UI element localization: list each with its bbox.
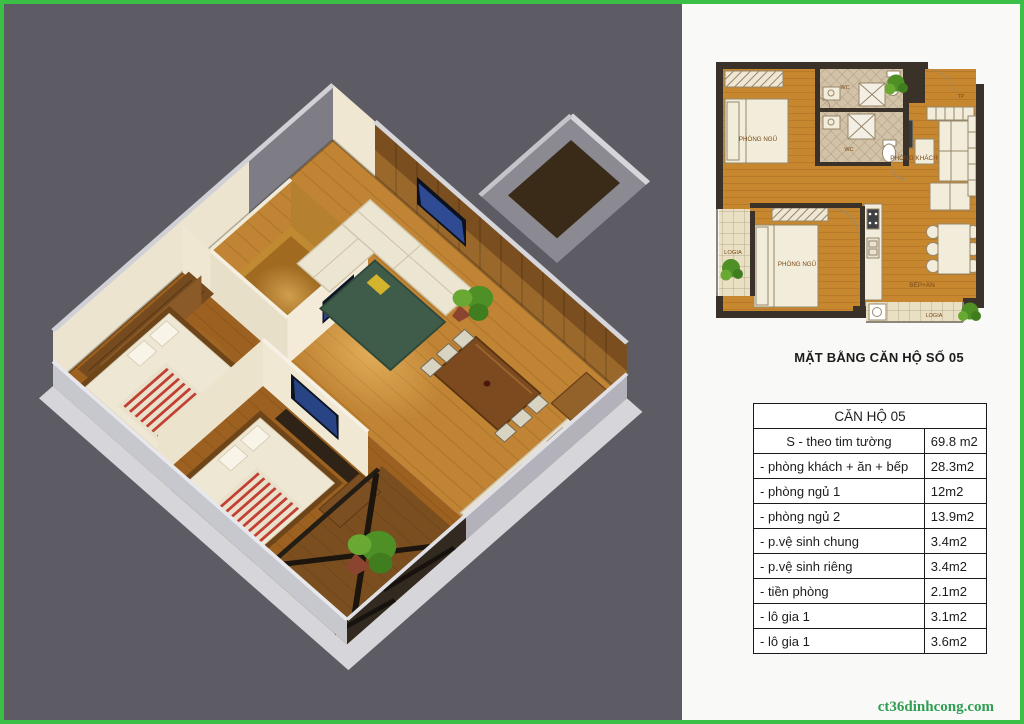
row-value: 3.6m2 (924, 629, 986, 654)
row-value: 2.1m2 (924, 579, 986, 604)
room-label-logia-bottom: LOGIA (926, 313, 943, 319)
row-label: - p.vệ sinh riêng (754, 554, 925, 579)
floor-plan: PHÒNG NGỦ WC WC PHÒNG KHÁCH TP LOGIA PHÒ… (712, 58, 990, 334)
table-row: - lô gia 13.1m2 (754, 604, 987, 629)
row-value: 3.4m2 (924, 529, 986, 554)
room-label-entry: TP (957, 94, 964, 100)
table-header-row: CĂN HỘ 05 (754, 404, 987, 429)
tv-cabinet (968, 116, 976, 196)
table-row: - p.vệ sinh chung3.4m2 (754, 529, 987, 554)
area-table-body: S - theo tim tường69.8 m2- phòng khách +… (754, 429, 987, 654)
row-value: 3.4m2 (924, 554, 986, 579)
table-row: - p.vệ sinh riêng3.4m2 (754, 554, 987, 579)
kitchen-counter (864, 204, 882, 300)
sink-icon (823, 87, 840, 100)
sofa-icon (930, 183, 970, 210)
row-value: 13.9m2 (924, 504, 986, 529)
row-label: - p.vệ sinh chung (754, 529, 925, 554)
room-label-logia-left: LOGIA (724, 250, 742, 256)
table-header: CĂN HỘ 05 (754, 404, 987, 429)
room-label-living: PHÒNG KHÁCH (890, 153, 938, 162)
page-title: MẶT BẰNG CĂN HỘ SỐ 05 (738, 350, 1020, 365)
bed-icon (725, 99, 788, 163)
room-label-bedroom2: PHÒNG NGỦ (778, 261, 816, 268)
row-label: - lô gia 1 (754, 629, 925, 654)
wardrobe-icon (725, 71, 783, 87)
table-row: - lô gia 13.6m2 (754, 629, 987, 654)
table-row: S - theo tim tường69.8 m2 (754, 429, 987, 454)
washing-machine-icon (869, 304, 886, 320)
stove-icon (867, 209, 879, 229)
shower-icon (859, 83, 885, 106)
room-label-bedroom1: PHÒNG NGỦ (739, 136, 777, 143)
row-label: - phòng ngủ 2 (754, 504, 925, 529)
shoe-cabinet (927, 107, 974, 120)
row-label: - tiền phòng (754, 579, 925, 604)
row-value: 3.1m2 (924, 604, 986, 629)
row-label: - lô gia 1 (754, 604, 925, 629)
dining-table-icon (927, 224, 980, 274)
row-label: S - theo tim tường (754, 429, 925, 454)
shower-icon (848, 114, 875, 139)
render-3d-pane (4, 4, 682, 720)
room-label-wc2: WC (844, 147, 853, 153)
wardrobe-icon (772, 208, 828, 221)
area-table: CĂN HỘ 05 S - theo tim tường69.8 m2- phò… (753, 403, 987, 654)
table-row: - phòng khách + ăn + bếp28.3m2 (754, 454, 987, 479)
row-value: 12m2 (924, 479, 986, 504)
table-row: - phòng ngủ 213.9m2 (754, 504, 987, 529)
row-label: - phòng ngủ 1 (754, 479, 925, 504)
apartment-3d-render (4, 4, 682, 720)
room-label-wc1: WC (840, 85, 849, 91)
row-value: 69.8 m2 (924, 429, 986, 454)
sink-icon (823, 116, 840, 129)
row-label: - phòng khách + ăn + bếp (754, 454, 925, 479)
info-panel: PHÒNG NGỦ WC WC PHÒNG KHÁCH TP LOGIA PHÒ… (682, 4, 1020, 720)
watermark: ct36dinhcong.com (878, 699, 994, 716)
page: PHÒNG NGỦ WC WC PHÒNG KHÁCH TP LOGIA PHÒ… (0, 0, 1024, 724)
table-row: - phòng ngủ 112m2 (754, 479, 987, 504)
row-value: 28.3m2 (924, 454, 986, 479)
table-row: - tiền phòng2.1m2 (754, 579, 987, 604)
